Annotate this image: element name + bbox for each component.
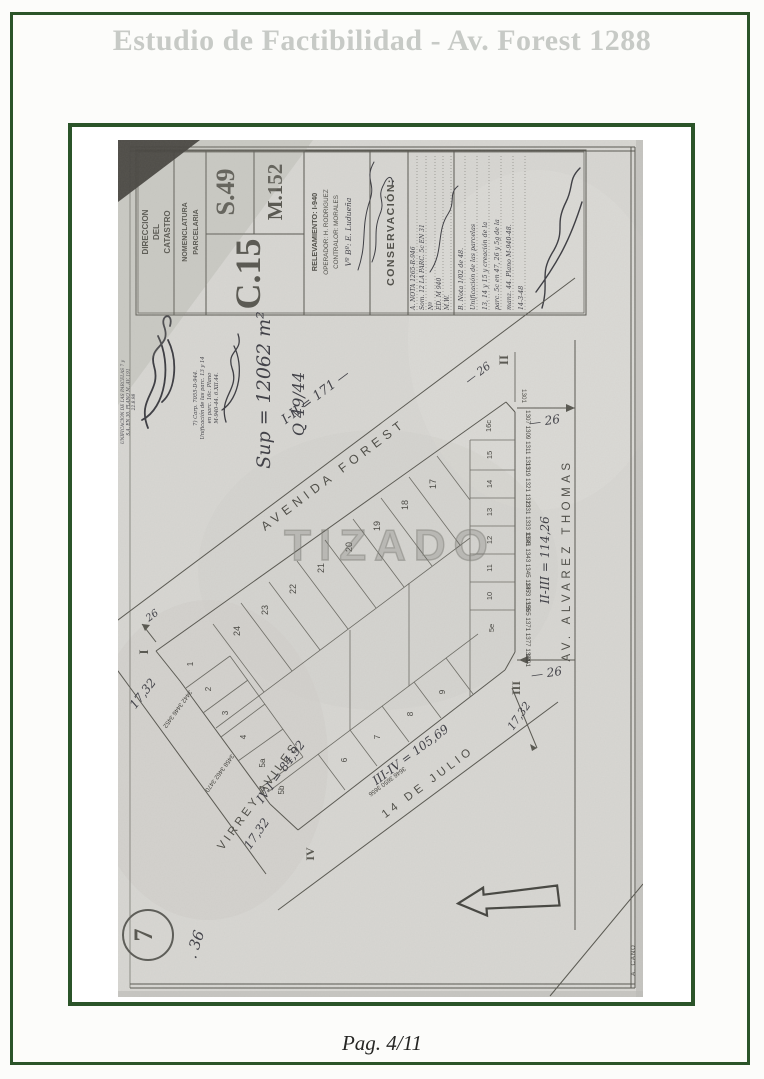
- grain-overlay: [118, 140, 643, 997]
- scanned-cadastral-plan: DIRECCION DEL CATASTRO NOMENCLATURA PARC…: [118, 140, 643, 997]
- cadastral-map-svg: DIRECCION DEL CATASTRO NOMENCLATURA PARC…: [118, 140, 643, 997]
- document-page: Estudio de Factibilidad - Av. Forest 128…: [0, 0, 764, 1079]
- page-number: Pag. 4/11: [0, 1031, 764, 1056]
- page-title: Estudio de Factibilidad - Av. Forest 128…: [0, 24, 764, 58]
- map-frame: DIRECCION DEL CATASTRO NOMENCLATURA PARC…: [68, 123, 695, 1006]
